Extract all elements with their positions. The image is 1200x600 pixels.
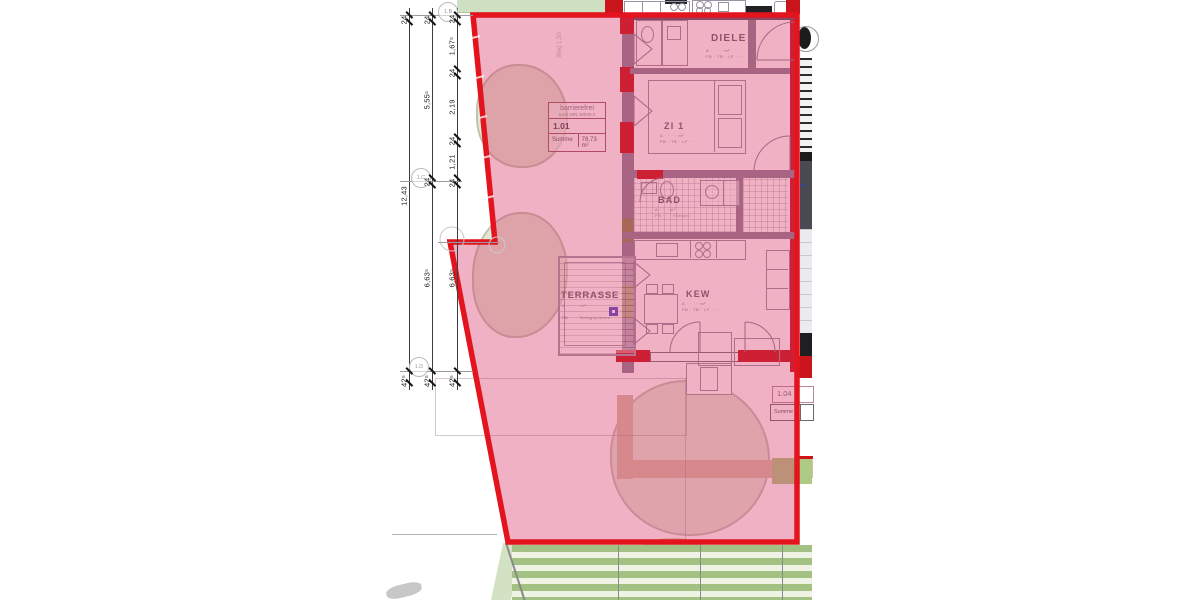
dim-label: 6,63⁵ (423, 269, 432, 288)
dim-chain-line (432, 8, 433, 390)
dim-extension-line (438, 242, 500, 243)
dim-label: 1,67⁵ (448, 37, 457, 56)
dim-chain-line (457, 8, 458, 390)
floorplan-viewport: Weg 1,50 ≡ DIELE A · · · · m (0, 0, 1200, 600)
dim-label: 2,19 (448, 99, 457, 114)
dim-label: 5,55⁵ (423, 91, 432, 110)
selection-overlay[interactable] (0, 0, 1200, 600)
dim-label: 1,21 (448, 154, 457, 169)
dim-label: 12,43 (400, 186, 409, 206)
highlighted-unit-polygon (450, 15, 797, 542)
dim-label: 6,63⁵ (448, 269, 457, 288)
dim-chain-line (409, 8, 410, 390)
